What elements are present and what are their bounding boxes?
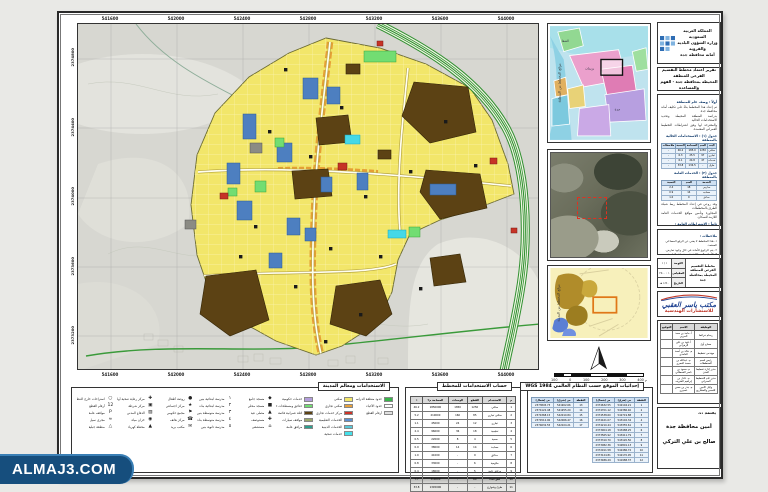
table-row: رسام خرائطأ. ماجد بن سعد الحربي bbox=[661, 331, 718, 340]
ministry-header-lines: المملكة العربية السعوديةوزارة الشؤون الب… bbox=[677, 28, 718, 57]
legend-label: أرقام القطع bbox=[366, 411, 382, 415]
legend-label: مدرسة ابتدائية بنين bbox=[199, 397, 224, 401]
legend-entry: كتلة عمرانية قائمة bbox=[276, 411, 313, 416]
legend-entry: ▲مصلى عيد bbox=[237, 411, 274, 416]
legend-symbol-icon: ▲ bbox=[147, 425, 154, 430]
legend-color-chip bbox=[304, 411, 313, 416]
legend-entry: أرقام القطع bbox=[356, 411, 393, 416]
legend-symbol-icon: ٢ bbox=[227, 404, 234, 409]
legend-entry: ٥مدرسة ثانوية بنين bbox=[197, 425, 234, 430]
legend-label: حدود منطقة الدراسة bbox=[356, 397, 382, 401]
legend-label: مركز خدمات تجاري bbox=[316, 411, 342, 415]
map-top-coordinates: 5416005420005424005428005432005436005440… bbox=[77, 16, 539, 22]
table-row: حدائق91.0 bbox=[662, 195, 717, 200]
grid-coordinate-label: 542000 bbox=[143, 16, 209, 22]
context-map-svg bbox=[550, 268, 648, 338]
legend-entry: ◆مسجد جامع bbox=[237, 397, 274, 402]
legend-entry: ▨الدفاع المدني bbox=[117, 411, 154, 416]
coordinates-title: إحداثيات الموقع حسب النظام العالمي WGS 1… bbox=[520, 382, 644, 391]
scale-bar: 1000100200300400 م bbox=[551, 373, 647, 382]
legend-symbol-icon: ٣ bbox=[227, 411, 234, 416]
text-line: بدراسة المنطقة المحيطة وتحديد الاستخداما… bbox=[661, 114, 717, 123]
legend-entry: ★مركز اجتماعي bbox=[157, 404, 194, 409]
legend-label: مدرسة ثانوية بنين bbox=[201, 425, 225, 429]
legend-entry: Pمواقف عامة bbox=[77, 411, 114, 416]
legend-label: مستشفى bbox=[252, 425, 265, 429]
legend-entry: ⚑مجمع حكومي bbox=[157, 411, 194, 416]
consultant-subtitle: للاستشارات الهندسية bbox=[658, 309, 720, 314]
legend-title: الاستخدامات ومعالم المدينة bbox=[318, 382, 390, 391]
map-left-coordinates: 23748002374400237400023736002373200 bbox=[68, 23, 76, 370]
key-map-svg: بريمان جدة الصفا bbox=[550, 26, 648, 140]
legend-label: حدود الأحياء bbox=[366, 404, 382, 408]
approver-name: صالح بن علي التركي bbox=[658, 439, 720, 445]
legend-entry: مرافق عامة bbox=[276, 425, 313, 430]
legend-symbol-icon: ◉ bbox=[147, 418, 154, 423]
grid-coordinate-label: 542000 bbox=[143, 372, 209, 378]
doc-paragraph-1: تم إعداد هذا المخطط بناءً على تكليف أمان… bbox=[661, 105, 717, 132]
satellite-image bbox=[550, 152, 648, 258]
signature-table-box: الوظيفةالاسمالتوقيعرسام خرائطأ. ماجد بن … bbox=[657, 320, 721, 404]
doc-table2-title: جدول (٢) : الخدمات العامة بالمنطقة bbox=[661, 171, 717, 179]
text-line: تم إعداد هذا المخطط بناءً على تكليف أمان… bbox=[661, 105, 717, 114]
grid-coordinate-label: 544000 bbox=[473, 16, 539, 22]
legend-entry: خدمات حكومية bbox=[276, 397, 313, 402]
legend-label: الدفاع المدني bbox=[127, 411, 145, 415]
grid-coordinate-label: 544000 bbox=[473, 372, 539, 378]
data-table: مالاستخدامالقطعالوحداتالمساحة م٢٪1سكني12… bbox=[410, 396, 516, 492]
legend-entry: ☎مركز هاتف bbox=[157, 418, 194, 423]
legend-entry: حدود منطقة الدراسة bbox=[356, 397, 393, 402]
legend-symbol-icon: ✚ bbox=[266, 418, 273, 423]
legend-label: مدرسة ابتدائية بنات bbox=[199, 404, 225, 408]
legend-label: استراحات خارج التنظيم bbox=[77, 397, 105, 401]
legend-entry: ٣مدرسة متوسطة بنين bbox=[197, 411, 234, 416]
grid-coordinate-label: 2373200 bbox=[70, 326, 75, 345]
main-map[interactable] bbox=[77, 23, 539, 370]
legend-color-chip bbox=[344, 404, 353, 409]
grid-coordinate-label: 543600 bbox=[407, 16, 473, 22]
legend-entry: حدائق ومسطحات خضراء bbox=[276, 404, 313, 409]
grid-coordinate-label: 541600 bbox=[77, 16, 143, 22]
grid-coordinate-label: 2373600 bbox=[70, 257, 75, 276]
text-line: ١- هذا المخطط لا يغني عن الرفع المساحي ا… bbox=[661, 239, 717, 248]
table-row: طرق-134.533.8- bbox=[662, 163, 717, 168]
legend-entry: مركز خدمات تجاري bbox=[316, 411, 353, 416]
legend-label: مركز اجتماعي bbox=[166, 404, 185, 408]
legend-entry: الخدمات الدينية bbox=[316, 425, 353, 430]
report-title-box: تقرير اعتماد مخطط التقسيم الفرعي للمنطقة… bbox=[657, 67, 721, 91]
legend-symbol-icon: ● bbox=[187, 397, 194, 402]
legend-label: كتلة عمرانية قائمة bbox=[278, 411, 302, 415]
legend-symbol-icon: ▲ bbox=[266, 411, 273, 416]
legend-symbol-icon: △ bbox=[107, 425, 114, 430]
text-line: والمقترحة لها وفق اشتراطات التخطيط العمر… bbox=[661, 123, 717, 132]
title-block-row: المقياس١ : ٢٥٠٠ bbox=[658, 269, 685, 279]
approval-box: يعتمد ،،، أمين محافظة جدة صالح بن علي ال… bbox=[657, 407, 721, 469]
legend-symbol-icon: ▨ bbox=[147, 411, 154, 416]
title-block-row: التاريخ١٤٤٠ هـ bbox=[658, 278, 685, 287]
ministry-logo-icon bbox=[660, 36, 675, 51]
data-table: النقطةس (شرق)ص (شمال)1542104.212374632.5… bbox=[592, 397, 650, 463]
legend-label: روضة أطفال bbox=[168, 397, 185, 401]
doc-heading-1: أولاً : وصف عام للمنطقة bbox=[661, 100, 717, 104]
grid-coordinate-label: 543200 bbox=[341, 372, 407, 378]
notes-lines: ١- هذا المخطط لا يغني عن الرفع المساحي ا… bbox=[661, 239, 717, 255]
legend-symbol-icon: ★ bbox=[187, 404, 194, 409]
table-row: 2سكني تجاري851602100005.2 bbox=[411, 412, 516, 420]
legend-entry: ٤مدرسة متوسطة بنات bbox=[197, 418, 234, 423]
title-block-row: اللوحة١ / ١ bbox=[658, 259, 685, 269]
legend-entry: ✉مكتب بريد bbox=[157, 425, 194, 430]
legend-label: مسجد جامع bbox=[249, 397, 265, 401]
legend-label: مصلى عيد bbox=[251, 411, 265, 415]
legend-borders-column: حدود منطقة الدراسةحدود الأحياءأرقام القط… bbox=[356, 397, 393, 468]
doc-table1-title: جدول (١) : الاستخدامات الحالية بالمنطقة bbox=[661, 134, 717, 142]
legend-label: سكني bbox=[334, 397, 342, 401]
legend-color-chip bbox=[304, 418, 313, 423]
legend-color-chip bbox=[344, 425, 353, 430]
doc-table-2: الخدمةالعددالنسبةمدارس182.4مساجد140.9حدا… bbox=[661, 180, 717, 201]
legend-label: حدائق ومسطحات خضراء bbox=[276, 404, 302, 408]
legend-label: مركز هاتف bbox=[170, 418, 185, 422]
data-table: الوظيفةالاسمالتوقيعرسام خرائطأ. ماجد بن … bbox=[660, 323, 718, 394]
legend-entry: ٢مدرسة ابتدائية بنات bbox=[197, 404, 234, 409]
legend-entry: ■مسجد محلي bbox=[237, 404, 274, 409]
legend-entry: سكني تجاري bbox=[316, 404, 353, 409]
table-row: 1سكني12501850185000046.2 bbox=[411, 404, 516, 412]
legend-label: مركز شرطة bbox=[128, 404, 144, 408]
header-line: وزارة الشؤون البلدية والقروية bbox=[677, 40, 718, 52]
table-row: 17542104.212374632.55 bbox=[532, 423, 589, 428]
table-row: مساح أولأ. فهد بن علي الزهراني bbox=[661, 340, 718, 349]
doc-paragraph-2: وقد روعي في إعداد المخطط ربط شبكة الطرق … bbox=[661, 202, 717, 220]
page-background: { "watermark": {"text": "ALMAJ3.COM", "b… bbox=[0, 0, 768, 492]
legend-colors-column-1: سكنيسكني تجاريمركز خدمات تجاريالخدمات ال… bbox=[316, 397, 353, 468]
table-row: 4تعليمية1836960002.4 bbox=[411, 428, 516, 436]
legend-symbol-icon: P bbox=[107, 411, 114, 416]
table-row: 5صحية48220000.5 bbox=[411, 436, 516, 444]
legend-symbol-icon: ١ bbox=[227, 397, 234, 402]
legend-symbol-icon: ✚ bbox=[147, 397, 154, 402]
doc-heading-2: ثانياً : الاشتراطات العامة : bbox=[661, 222, 717, 226]
legend-entry: خدمات صحية bbox=[316, 431, 353, 436]
text-line: وقد روعي في إعداد المخطط ربط شبكة الطرق … bbox=[661, 202, 717, 211]
legend-label: مجمع حكومي bbox=[167, 411, 185, 415]
grid-coordinate-label: 542400 bbox=[209, 372, 275, 378]
legend-label: سكني تجاري bbox=[325, 404, 342, 408]
grid-coordinate-label: 542800 bbox=[275, 16, 341, 22]
legend-color-chip bbox=[344, 431, 353, 436]
ministry-header: المملكة العربية السعوديةوزارة الشؤون الب… bbox=[657, 22, 721, 64]
table-row: رئيس قسم المخططاتم. عبدالله بن محمد العم… bbox=[661, 358, 718, 367]
legend-symbol-icon: ◆ bbox=[266, 397, 273, 402]
data-table: الخدمةالعددالنسبةمدارس182.4مساجد140.9حدا… bbox=[661, 180, 717, 201]
legend-label: مدرسة متوسطة بنين bbox=[197, 411, 225, 415]
svg-text:بريمان: بريمان bbox=[585, 66, 594, 70]
table-row: 10قطع فضاء60-3100007.7 bbox=[411, 476, 516, 484]
title-block-grid: اللوحة١ / ١المقياس١ : ٢٥٠٠التاريخ١٤٤٠ هـ bbox=[658, 259, 685, 287]
approver-title: أمين محافظة جدة bbox=[658, 424, 720, 430]
key-map-caption: موقع المخطط من المنطقة bbox=[558, 63, 562, 102]
table-row: 11طرق وشوارع--134500033.8 bbox=[411, 484, 516, 492]
legend-label: مدرسة متوسطة بنات bbox=[197, 418, 225, 422]
legend-entry: ▣مركز شرطة bbox=[117, 404, 154, 409]
land-use-table-box: حساب الاستخدامات للمخطط مالاستخدامالقطعا… bbox=[405, 387, 521, 473]
legend-symbols-column-3: ●روضة أطفال★مركز اجتماعي⚑مجمع حكومي☎مركز… bbox=[157, 397, 194, 468]
legend-colors-column-2: خدمات حكوميةحدائق ومسطحات خضراءكتلة عمرا… bbox=[276, 397, 313, 468]
satellite-map[interactable]: صورة جوية للموقع bbox=[547, 149, 651, 261]
legend-symbol-icon: ٥ bbox=[227, 425, 234, 430]
legend-entry: سكني bbox=[316, 397, 353, 402]
land-use-table-title: حساب الاستخدامات للمخطط bbox=[437, 382, 512, 391]
legend-symbol-icon: ☎ bbox=[187, 418, 194, 423]
legend-entry: ١مدرسة ابتدائية بنين bbox=[197, 397, 234, 402]
region-key-map[interactable]: موقع المخطط من المنطقة بريمان جدة الصفا bbox=[547, 23, 651, 143]
legend-entry: ✚مركز رعاية صحية أولية bbox=[117, 397, 154, 402]
legend-entry: ▲محطة كهرباء bbox=[117, 425, 154, 430]
legend-symbol-icon: ▣ bbox=[147, 404, 154, 409]
header-line: أمانة محافظة جدة bbox=[677, 52, 718, 58]
grid-coordinate-label: 543200 bbox=[341, 16, 407, 22]
legend-symbols-column-1: ◆مسجد جامع■مسجد محلي▲مصلى عيد✚مستوصف⌂مست… bbox=[237, 397, 274, 468]
legend-color-chip bbox=[304, 425, 313, 430]
grid-coordinate-label: 2374400 bbox=[70, 118, 75, 137]
table-row: وكيل الأمين للتعمير والمشاريعم. بندر بن … bbox=[661, 385, 718, 394]
table-header-row: الوظيفةالاسمالتوقيع bbox=[661, 324, 718, 331]
consultant-name: مكتب ياسر العقبي bbox=[658, 301, 720, 309]
legend-label: خدمات صحية bbox=[324, 432, 342, 436]
doc-table-1: البندالعددالمساحةالنسبةملاحظاتسكني125018… bbox=[661, 143, 717, 169]
table-row: مدير عام التخطيط العمرانيم. عادل بن إبرا… bbox=[661, 376, 718, 385]
table-row: 7حدائق9-410001.0 bbox=[411, 452, 516, 460]
legend-entry: حدود الأحياء bbox=[356, 404, 393, 409]
legend-entry: △منطقة جبلية bbox=[77, 425, 114, 430]
legend-symbol-icon: ٤ bbox=[227, 418, 234, 423]
legend-color-chip bbox=[304, 404, 313, 409]
legend-symbol-icon: ⌂ bbox=[266, 425, 273, 430]
legend-color-chip bbox=[344, 397, 353, 402]
grid-coordinate-label: 541600 bbox=[77, 372, 143, 378]
data-table: النقطةس (شرق)ص (شمال)13541902.662373845.… bbox=[531, 397, 589, 428]
legend-symbol-icon: ⚑ bbox=[187, 411, 194, 416]
grid-coordinate-label: 542800 bbox=[275, 372, 341, 378]
approval-word: يعتمد ،،، bbox=[658, 408, 720, 416]
table-row: 12541988.372373486.29 bbox=[592, 458, 649, 463]
legend-entry: مواقف سيارات bbox=[276, 418, 313, 423]
context-caption: موقع المخطط من المدينة bbox=[557, 284, 561, 321]
grid-coordinate-label: 543600 bbox=[407, 372, 473, 378]
legend-color-chip bbox=[384, 397, 393, 402]
signature-table: الوظيفةالاسمالتوقيعرسام خرائطأ. ماجد بن … bbox=[660, 323, 718, 394]
legend-label: مرافق عامة bbox=[286, 425, 302, 429]
legend-entry: ≈مجرى سيل bbox=[77, 418, 114, 423]
legend-color-chip bbox=[384, 404, 393, 409]
coordinates-box: إحداثيات الموقع حسب النظام العالمي WGS 1… bbox=[527, 387, 653, 473]
legend-label: محطة كهرباء bbox=[128, 425, 145, 429]
city-context-map[interactable]: موقع المخطط من المدينة bbox=[547, 265, 651, 341]
legend-color-chip bbox=[344, 411, 353, 416]
grid-coordinate-label: 2374800 bbox=[70, 48, 75, 67]
table-row: 9مرافق عامة5-180000.4 bbox=[411, 468, 516, 476]
notes-title: ملاحظات : bbox=[661, 234, 717, 238]
table-row: 8حكومية6-330000.8 bbox=[411, 460, 516, 468]
legend-label: مسجد محلي bbox=[248, 404, 265, 408]
text-line: ٣- الأبعاد والمساحات تقريبية وفق الطبيعة… bbox=[661, 252, 717, 255]
almaj3-watermark: ALMAJ3.COM bbox=[0, 454, 134, 484]
data-table: البندالعددالمساحةالنسبةملاحظاتسكني125018… bbox=[661, 143, 717, 169]
legend-label: مكتب بريد bbox=[171, 425, 185, 429]
legend-entry: ●روضة أطفال bbox=[157, 397, 194, 402]
legend-entry: الخدمات التعليمية bbox=[316, 418, 353, 423]
legend-label: مواقف سيارات bbox=[282, 418, 302, 422]
legend-label: مركز رعاية صحية أولية bbox=[117, 397, 145, 401]
legend-symbol-icon: ○ bbox=[107, 397, 114, 402]
map-bottom-coordinates: 5416005420005424005428005432005436005440… bbox=[77, 372, 539, 378]
text-line: المجاورة وتأمين مواقع الخدمات العامة الل… bbox=[661, 211, 717, 220]
legend-label: خدمات حكومية bbox=[282, 397, 302, 401]
legend-color-chip bbox=[344, 418, 353, 423]
legend-entry: ⌂مستشفى bbox=[237, 425, 274, 430]
legend-entry: ○استراحات خارج التنظيم bbox=[77, 397, 114, 402]
notes-box: ملاحظات : ١- هذا المخطط لا يغني عن الرفع… bbox=[657, 229, 721, 255]
svg-text:الصفا: الصفا bbox=[562, 39, 569, 43]
legend-symbols-column-2: ١مدرسة ابتدائية بنين٢مدرسة ابتدائية بنات… bbox=[197, 397, 234, 468]
legend-symbol-icon: ■ bbox=[266, 404, 273, 409]
legend-entry: 12أرقام القطع bbox=[77, 404, 114, 409]
coordinates-table-a: النقطةس (شرق)ص (شمال)1542104.212374632.5… bbox=[592, 396, 650, 464]
title-line: المحيطة بمحافظة جدة - الفهم والمساعدة bbox=[659, 79, 719, 91]
legend-label: مستوصف bbox=[251, 418, 264, 422]
logo-swoosh bbox=[659, 294, 719, 301]
legend-symbol-icon: ✉ bbox=[187, 425, 194, 430]
table-row: مدير إدارة تخطيط المدنم. سعود بن ناصر ال… bbox=[661, 367, 718, 376]
title-block: مخطط التقسيم الفرعي للمنطقة المحيطة بمحا… bbox=[657, 258, 721, 288]
legend-symbol-icon: 12 bbox=[107, 404, 114, 409]
svg-text:جدة: جدة bbox=[615, 107, 621, 111]
table-row: مهندس تخطيطم. خالد بن أحمد الغامدي bbox=[661, 349, 718, 358]
satellite-site-rect bbox=[577, 197, 607, 219]
legend-entry: ✚مستوصف bbox=[237, 418, 274, 423]
legend-symbol-icon: ≈ bbox=[107, 418, 114, 423]
legend-label: مجرى سيل bbox=[90, 418, 105, 422]
zoning-map-svg bbox=[78, 24, 539, 370]
plan-sheet: 5416005420005424005428005432005436005440… bbox=[57, 11, 723, 479]
grid-coordinate-label: 2374000 bbox=[70, 187, 75, 206]
legend-label: منطقة جبلية bbox=[89, 425, 105, 429]
legend-label: الخدمات الدينية bbox=[322, 425, 342, 429]
table-row: 3تجاري1224450001.1 bbox=[411, 420, 516, 428]
title-block-name: مخطط التقسيم الفرعي للمنطقة المحيطة بمحا… bbox=[685, 259, 720, 287]
table-row: 6مساجد1414380000.9 bbox=[411, 444, 516, 452]
report-body: أولاً : وصف عام للمنطقة تم إعداد هذا الم… bbox=[657, 94, 721, 226]
site-locator-rect bbox=[601, 59, 623, 75]
legend-color-chip bbox=[384, 411, 393, 416]
coordinates-table-b: النقطةس (شرق)ص (شمال)13541902.662373845.… bbox=[531, 396, 589, 464]
north-arrow bbox=[547, 345, 651, 371]
legend-label: الخدمات التعليمية bbox=[319, 418, 342, 422]
legend-entry: ◉خزان مياه bbox=[117, 418, 154, 423]
grid-coordinate-label: 542400 bbox=[209, 16, 275, 22]
legend-label: أرقام القطع bbox=[89, 404, 105, 408]
header-line: المملكة العربية السعودية bbox=[677, 28, 718, 40]
title-line: تقرير اعتماد مخطط التقسيم الفرعي للمنطقة bbox=[659, 67, 719, 79]
consultant-logo: مكتب ياسر العقبي للاستشارات الهندسية bbox=[657, 291, 721, 317]
table-header-row: مالاستخدامالقطعالوحداتالمساحة م٢٪ bbox=[411, 397, 516, 404]
land-use-table: مالاستخدامالقطعالوحداتالمساحة م٢٪1سكني12… bbox=[410, 396, 516, 492]
legend-label: مواقف عامة bbox=[89, 411, 105, 415]
legend-color-chip bbox=[304, 397, 313, 402]
legend-label: خزان مياه bbox=[131, 418, 144, 422]
